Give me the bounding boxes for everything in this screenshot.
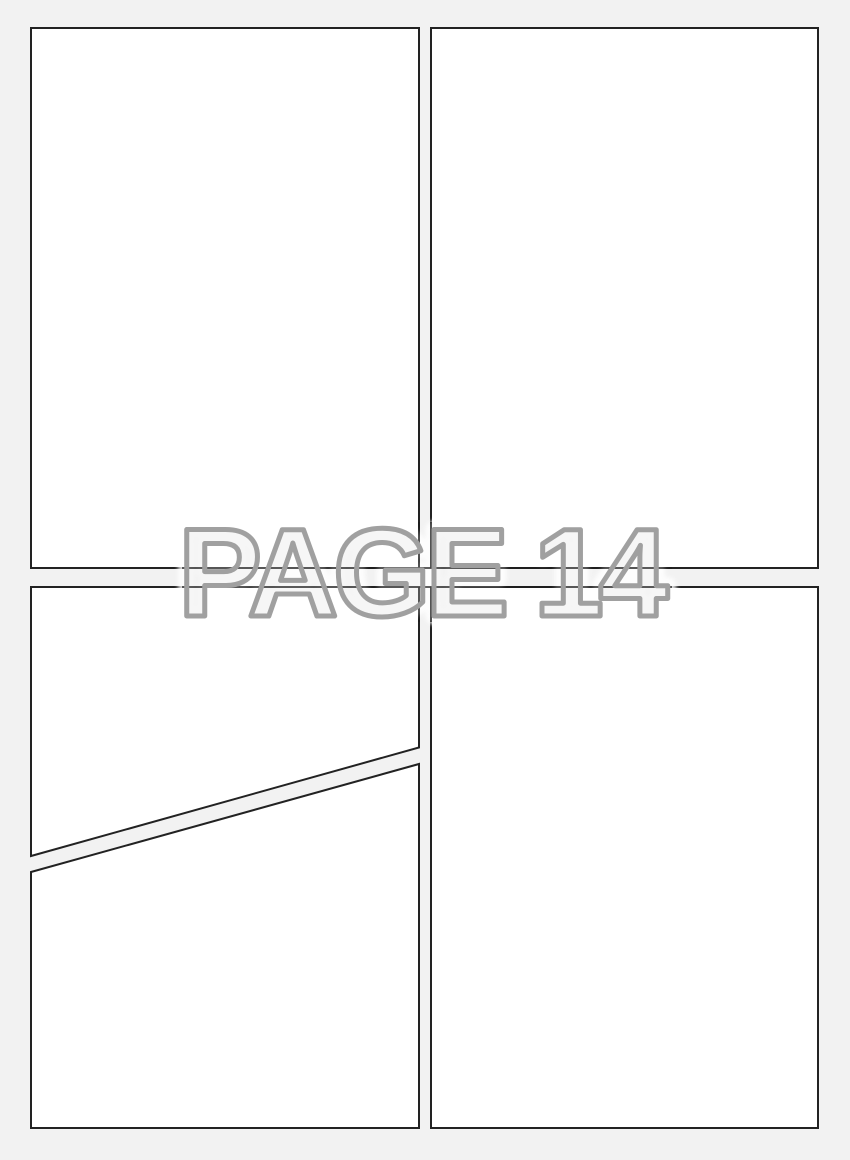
svg-text:PAGE 14: PAGE 14: [178, 504, 667, 643]
